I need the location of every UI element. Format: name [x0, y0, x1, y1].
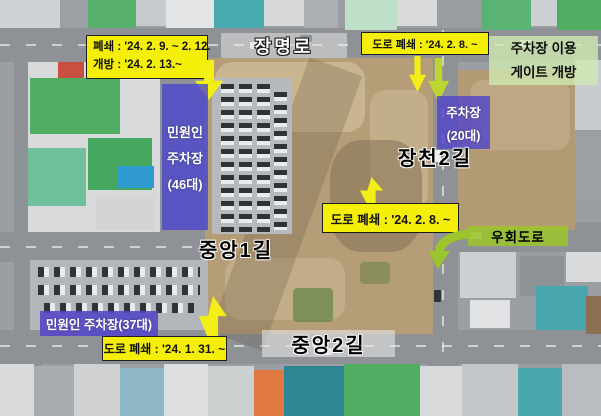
parking-20-line1: 주차장	[446, 102, 481, 121]
road-closure-top-box: 도로 폐쇄 : '24. 2. 8. ~	[361, 32, 489, 55]
closure-schedule-box: 폐쇄 : '24. 2. 9. ~ 2. 12. 개방 : '24. 2. 13…	[86, 35, 208, 79]
road-closure-bottom-box: 도로 폐쇄 : '24. 1. 31. ~	[102, 336, 227, 361]
building	[28, 148, 86, 206]
swimming-pool	[118, 166, 154, 188]
parked-cars-row	[38, 267, 200, 277]
parking-46-strip: 민원인 주차장 (46대)	[162, 84, 208, 230]
road-closure-top-text: 도로 폐쇄 : '24. 2. 8. ~	[372, 36, 477, 52]
parking-46-line3: (46대)	[167, 174, 202, 193]
road-label-jangcheon2-text: 장천2길	[398, 142, 472, 171]
building	[566, 252, 601, 282]
road-label-jangmyeong: 장명로	[221, 33, 347, 58]
building	[88, 0, 136, 28]
building	[60, 0, 88, 26]
road-label-jangmyeong-text: 장명로	[255, 33, 314, 59]
building	[462, 364, 518, 416]
building	[74, 364, 120, 416]
parked-cars-column	[274, 92, 287, 230]
building	[557, 0, 601, 30]
building	[0, 0, 60, 28]
car	[434, 290, 441, 302]
building	[208, 366, 254, 416]
detour-label-band: 우회도로	[468, 226, 568, 246]
building	[562, 364, 601, 416]
building	[586, 296, 601, 334]
lane-marking	[442, 30, 444, 360]
building	[136, 0, 166, 26]
closure-schedule-line1: 폐쇄 : '24. 2. 9. ~ 2. 12.	[93, 39, 211, 57]
road-label-jungang1: 중앙1길	[187, 236, 285, 261]
road-label-jungang2: 중앙2길	[262, 330, 395, 357]
building	[58, 62, 84, 78]
road-label-jungang1-text: 중앙1길	[199, 234, 273, 263]
parking-37-box: 민원인 주차장(37대)	[40, 311, 158, 336]
building	[470, 300, 510, 328]
vegetation-patch	[293, 288, 333, 322]
building	[397, 0, 437, 26]
parking-37-text: 민원인 주차장(37대)	[46, 314, 152, 333]
building	[120, 368, 164, 416]
aerial-photo: 폐쇄 : '24. 2. 9. ~ 2. 12. 개방 : '24. 2. 13…	[0, 0, 601, 416]
parked-cars-row	[38, 285, 200, 295]
building	[304, 0, 338, 28]
parking-46-line2: 주차장	[167, 148, 203, 167]
building	[344, 364, 420, 416]
building	[420, 366, 462, 416]
building	[34, 366, 74, 416]
building	[284, 366, 344, 416]
building	[166, 0, 214, 28]
parked-cars-column	[239, 84, 252, 232]
road-label-jangcheon2: 장천2길	[387, 143, 483, 169]
gate-notice-line2: 게이트 개방	[511, 61, 577, 85]
building	[531, 0, 557, 26]
building	[0, 364, 34, 416]
building	[254, 370, 284, 416]
building	[164, 364, 208, 416]
detour-curved-arrow-icon	[424, 226, 472, 270]
road-closure-mid-text: 도로 폐쇄 : '24. 2. 8. ~	[331, 209, 451, 228]
closure-schedule-line2: 개방 : '24. 2. 13.~	[93, 57, 182, 75]
building	[264, 0, 304, 26]
road-label-jungang2-text: 중앙2길	[291, 329, 365, 358]
building	[214, 0, 264, 28]
building	[96, 196, 154, 230]
detour-label-text: 우회도로	[491, 226, 545, 246]
vegetation-patch	[360, 262, 390, 284]
parking-46-line1: 민원인	[167, 122, 203, 141]
building	[481, 0, 531, 30]
gate-notice-box: 주차장 이용 게이트 개방	[489, 36, 598, 85]
gate-notice-line1: 주차장 이용	[511, 37, 577, 61]
building	[575, 140, 601, 200]
parked-cars-column	[257, 84, 270, 232]
building	[518, 368, 562, 416]
building	[30, 78, 120, 134]
building	[536, 286, 588, 330]
parked-cars-column	[221, 84, 234, 232]
road-closure-bottom-text: 도로 폐쇄 : '24. 1. 31. ~	[104, 340, 225, 357]
building	[345, 0, 397, 30]
